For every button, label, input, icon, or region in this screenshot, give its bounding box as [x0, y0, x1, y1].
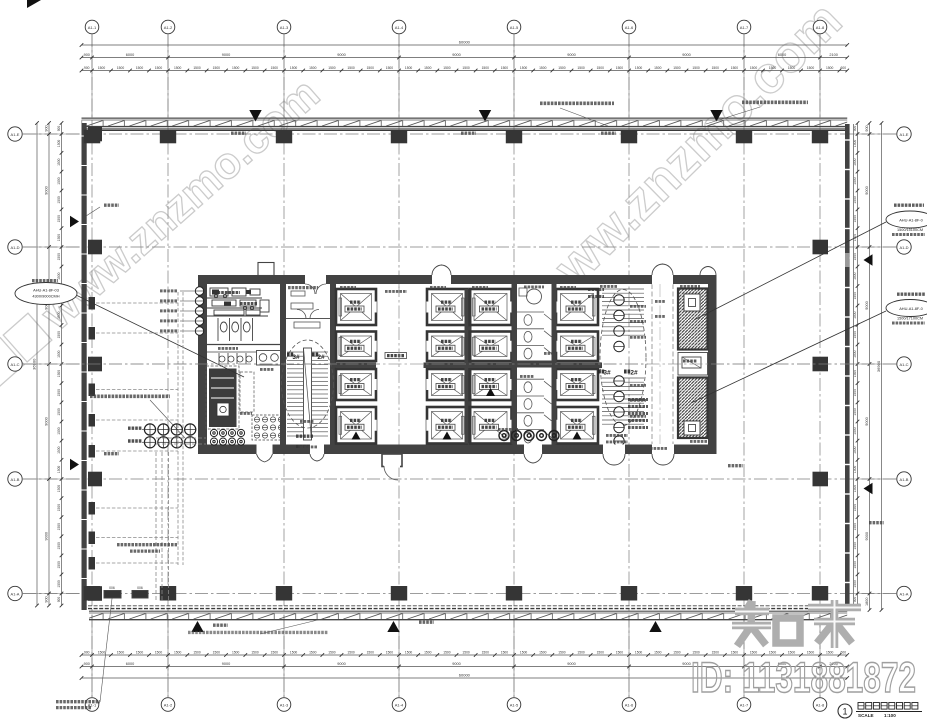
- svg-text:1500: 1500: [57, 485, 61, 493]
- svg-text:AHU-A1-8F-03: AHU-A1-8F-03: [33, 288, 59, 293]
- svg-text:900: 900: [84, 651, 90, 655]
- svg-text:1500: 1500: [367, 66, 375, 70]
- svg-text:1500: 1500: [213, 651, 221, 655]
- svg-text:1500: 1500: [424, 651, 432, 655]
- svg-text:1500: 1500: [57, 177, 61, 185]
- svg-text:1500: 1500: [405, 651, 413, 655]
- svg-text:1500: 1500: [57, 158, 61, 166]
- svg-text:A1-D: A1-D: [899, 245, 908, 250]
- svg-text:1500: 1500: [712, 66, 720, 70]
- svg-text:1500/15100CM: 1500/15100CM: [897, 228, 923, 232]
- svg-text:A1-5: A1-5: [510, 25, 519, 30]
- svg-text:AHU-A1-8F-0: AHU-A1-8F-0: [899, 306, 923, 311]
- svg-text:9000: 9000: [45, 186, 49, 194]
- svg-text:1500: 1500: [347, 66, 355, 70]
- svg-text:A1-6: A1-6: [625, 702, 634, 707]
- svg-text:A1-B: A1-B: [11, 477, 20, 482]
- svg-text:1500/17100CM: 1500/17100CM: [897, 317, 923, 321]
- svg-text:1500: 1500: [57, 580, 61, 588]
- svg-text:9000: 9000: [452, 53, 460, 57]
- svg-text:1500: 1500: [57, 389, 61, 397]
- svg-text:6000: 6000: [778, 53, 786, 57]
- svg-text:9000: 9000: [682, 53, 690, 57]
- svg-text:1500: 1500: [577, 66, 585, 70]
- svg-text:1500: 1500: [57, 427, 61, 435]
- svg-text:9000: 9000: [337, 662, 345, 666]
- svg-text:A1-8: A1-8: [816, 25, 825, 30]
- svg-text:1500: 1500: [328, 651, 336, 655]
- svg-text:1500: 1500: [558, 66, 566, 70]
- svg-text:6000: 6000: [126, 53, 134, 57]
- svg-text:1500: 1500: [482, 66, 490, 70]
- svg-text:900: 900: [57, 126, 61, 132]
- svg-text:1500: 1500: [654, 651, 662, 655]
- svg-text:1500: 1500: [57, 140, 61, 148]
- svg-text:A1-4: A1-4: [395, 702, 404, 707]
- svg-text:1500: 1500: [347, 651, 355, 655]
- svg-text:1500: 1500: [232, 66, 240, 70]
- svg-text:1500: 1500: [271, 66, 279, 70]
- svg-text:1500: 1500: [424, 66, 432, 70]
- svg-text:1500: 1500: [616, 66, 624, 70]
- svg-text:900: 900: [84, 53, 90, 57]
- svg-text:60000: 60000: [459, 39, 471, 44]
- svg-text:1500: 1500: [788, 66, 796, 70]
- svg-text:1500: 1500: [271, 651, 279, 655]
- svg-text:A1-B: A1-B: [900, 477, 909, 482]
- svg-text:900: 900: [57, 597, 61, 603]
- svg-text:1500: 1500: [654, 66, 662, 70]
- svg-text:1500: 1500: [136, 651, 144, 655]
- svg-text:1500: 1500: [558, 651, 566, 655]
- svg-text:1500: 1500: [826, 66, 834, 70]
- svg-text:1500: 1500: [443, 66, 451, 70]
- svg-text:A1-A: A1-A: [900, 591, 909, 596]
- svg-text:A1-2: A1-2: [164, 702, 173, 707]
- svg-text:2#: 2#: [317, 354, 325, 361]
- svg-text:1800: 1800: [865, 598, 869, 606]
- svg-text:1500: 1500: [136, 66, 144, 70]
- svg-text:A1-2: A1-2: [164, 25, 173, 30]
- svg-text:A1-E: A1-E: [900, 132, 909, 137]
- svg-text:ID: 1131881872: ID: 1131881872: [691, 654, 916, 702]
- svg-text:900: 900: [84, 66, 90, 70]
- svg-text:1500: 1500: [155, 66, 163, 70]
- svg-text:1500: 1500: [232, 651, 240, 655]
- svg-text:A1-7: A1-7: [740, 702, 749, 707]
- svg-text:6000: 6000: [126, 662, 134, 666]
- svg-text:1500: 1500: [155, 651, 163, 655]
- svg-text:1500: 1500: [807, 66, 815, 70]
- svg-text:1500: 1500: [57, 408, 61, 416]
- svg-text:A1-A: A1-A: [11, 591, 20, 596]
- svg-text:1500: 1500: [750, 66, 758, 70]
- svg-text:1500: 1500: [482, 651, 490, 655]
- svg-text:9000: 9000: [337, 53, 345, 57]
- svg-text:1500: 1500: [539, 651, 547, 655]
- svg-text:1500: 1500: [443, 651, 451, 655]
- svg-text:A1-3: A1-3: [280, 702, 289, 707]
- svg-text:1500: 1500: [251, 651, 259, 655]
- svg-text:1500: 1500: [193, 651, 201, 655]
- svg-text:1500: 1500: [57, 370, 61, 378]
- svg-text:1500: 1500: [405, 66, 413, 70]
- svg-text:9000: 9000: [567, 53, 575, 57]
- svg-text:600: 600: [841, 66, 847, 70]
- svg-text:2#: 2#: [630, 370, 638, 377]
- svg-text:1:100: 1:100: [884, 713, 896, 718]
- svg-text:9000: 9000: [222, 53, 230, 57]
- svg-text:1500: 1500: [309, 66, 317, 70]
- svg-text:1500: 1500: [57, 215, 61, 223]
- svg-text:1500: 1500: [57, 523, 61, 531]
- svg-text:1500: 1500: [769, 66, 777, 70]
- svg-text:1500: 1500: [57, 272, 61, 280]
- svg-text:900: 900: [45, 125, 49, 131]
- svg-text:1500: 1500: [57, 561, 61, 569]
- svg-text:1500: 1500: [501, 66, 509, 70]
- svg-text:1500: 1500: [98, 651, 106, 655]
- svg-text:1500: 1500: [386, 66, 394, 70]
- svg-text:A1-7: A1-7: [740, 25, 749, 30]
- svg-text:1500: 1500: [520, 66, 528, 70]
- svg-text:1500: 1500: [635, 651, 643, 655]
- svg-text:9000: 9000: [865, 417, 869, 425]
- svg-text:1500: 1500: [290, 66, 298, 70]
- svg-text:1500: 1500: [386, 651, 394, 655]
- svg-text:A1-E: A1-E: [11, 132, 20, 137]
- svg-text:1500: 1500: [57, 504, 61, 512]
- svg-text:2100: 2100: [829, 53, 837, 57]
- svg-text:3#: 3#: [603, 370, 611, 377]
- svg-text:3#: 3#: [292, 354, 300, 361]
- svg-text:1500: 1500: [367, 651, 375, 655]
- svg-text:1500: 1500: [501, 651, 509, 655]
- svg-text:1500: 1500: [57, 234, 61, 242]
- svg-text:A1-C: A1-C: [10, 362, 19, 367]
- svg-text:9000: 9000: [452, 662, 460, 666]
- svg-text:1500: 1500: [290, 651, 298, 655]
- svg-text:1500: 1500: [117, 66, 125, 70]
- svg-text:900: 900: [45, 596, 49, 602]
- svg-text:A1-8: A1-8: [816, 702, 825, 707]
- svg-text:A1-D: A1-D: [10, 245, 19, 250]
- svg-text:1500: 1500: [328, 66, 336, 70]
- svg-text:1500: 1500: [673, 66, 681, 70]
- svg-text:1500: 1500: [577, 651, 585, 655]
- svg-text:006: 006: [109, 586, 115, 590]
- svg-text:1500: 1500: [597, 651, 605, 655]
- svg-text:1500: 1500: [309, 651, 317, 655]
- svg-text:1500: 1500: [251, 66, 259, 70]
- svg-text:1500: 1500: [692, 66, 700, 70]
- svg-text:1500: 1500: [731, 66, 739, 70]
- svg-text:1500: 1500: [57, 253, 61, 261]
- svg-text:9000: 9000: [567, 662, 575, 666]
- svg-text:9000: 9000: [865, 186, 869, 194]
- svg-text:1500: 1500: [57, 311, 61, 319]
- svg-text:900: 900: [865, 125, 869, 131]
- svg-text:60000: 60000: [459, 672, 471, 677]
- svg-text:1500: 1500: [57, 196, 61, 204]
- svg-text:A1-5: A1-5: [510, 702, 519, 707]
- svg-text:A1-6: A1-6: [625, 25, 634, 30]
- svg-text:1500: 1500: [597, 66, 605, 70]
- svg-text:1500: 1500: [57, 542, 61, 550]
- svg-text:9000: 9000: [865, 532, 869, 540]
- svg-text:1500: 1500: [57, 446, 61, 454]
- svg-text:1500: 1500: [57, 331, 61, 339]
- svg-text:SCALE: SCALE: [858, 713, 874, 718]
- svg-text:9000: 9000: [682, 662, 690, 666]
- svg-text:1500: 1500: [462, 66, 470, 70]
- svg-text:1500: 1500: [193, 66, 201, 70]
- svg-text:9000: 9000: [222, 662, 230, 666]
- svg-text:1500: 1500: [117, 651, 125, 655]
- svg-text:9000: 9000: [45, 532, 49, 540]
- svg-text:9000: 9000: [45, 417, 49, 425]
- svg-text:4300/9000CMH: 4300/9000CMH: [32, 294, 59, 299]
- svg-text:A1-3: A1-3: [280, 25, 289, 30]
- svg-text:1500: 1500: [673, 651, 681, 655]
- svg-text:1500: 1500: [213, 66, 221, 70]
- svg-text:1500: 1500: [57, 466, 61, 474]
- svg-text:1500: 1500: [539, 66, 547, 70]
- svg-text:A1-1: A1-1: [88, 25, 97, 30]
- svg-text:1500: 1500: [462, 651, 470, 655]
- svg-text:1500: 1500: [174, 651, 182, 655]
- svg-text:900: 900: [84, 662, 90, 666]
- svg-text:1500: 1500: [635, 66, 643, 70]
- svg-text:1500: 1500: [98, 66, 106, 70]
- svg-text:1500: 1500: [616, 651, 624, 655]
- svg-text:AHU-A1-8F-0: AHU-A1-8F-0: [899, 218, 923, 223]
- svg-text:A1-4: A1-4: [395, 25, 404, 30]
- svg-text:1: 1: [842, 707, 847, 717]
- svg-text:1500: 1500: [520, 651, 528, 655]
- svg-text:36900: 36900: [876, 360, 881, 372]
- svg-text:006: 006: [137, 586, 143, 590]
- svg-text:A1-C: A1-C: [899, 362, 908, 367]
- svg-text:1500: 1500: [57, 350, 61, 358]
- svg-text:1500: 1500: [174, 66, 182, 70]
- svg-text:9000: 9000: [865, 301, 869, 309]
